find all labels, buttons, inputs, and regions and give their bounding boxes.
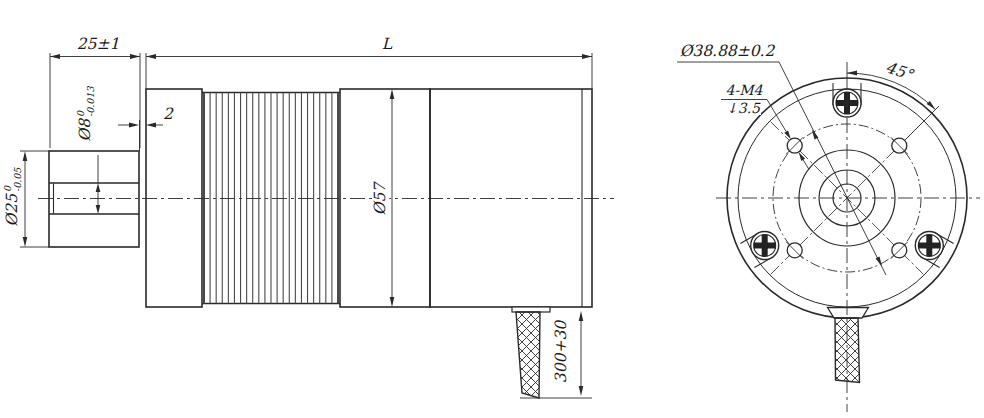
hole-depth-dim: ↓3.5 (725, 101, 761, 115)
mounting-holes-spec: 4-M4 (725, 83, 764, 97)
boss-protrusion-dim: 2 (162, 107, 174, 123)
overall-length-dim: L (381, 37, 393, 53)
side-view (20, 53, 614, 398)
cable-front (828, 308, 869, 383)
shaft-diameter-tol-lower: -0.013 (86, 87, 96, 117)
drawing-linework (0, 0, 984, 418)
motor-ribs (202, 93, 340, 304)
front-view (677, 62, 980, 412)
side-dimensions (20, 53, 592, 398)
engineering-drawing: 25±1 L 2 Ø80-0.013 Ø250-0.05 Ø57 300+30 … (0, 0, 984, 418)
cable-side (512, 307, 550, 398)
shaft-diameter-dim: Ø80-0.013 (76, 86, 96, 143)
shaft-length-dim: 25±1 (76, 37, 121, 53)
output-shaft (49, 151, 139, 247)
cable-length-dim: 300+30 (554, 320, 570, 384)
body-diameter-dim: Ø57 (373, 182, 389, 216)
boss-diameter-value: Ø25 (5, 194, 21, 226)
shaft-diameter-value: Ø8 (78, 119, 94, 142)
bolt-circle-dim: Ø38.88±0.2 (679, 44, 776, 60)
boss-diameter-dim: Ø250-0.05 (3, 167, 23, 228)
gearbox-flange (146, 89, 202, 307)
hole-depth-value: 3.5 (738, 100, 760, 116)
depth-symbol-icon: ↓ (726, 100, 738, 116)
boss-diameter-tol-lower: -0.05 (13, 168, 23, 192)
